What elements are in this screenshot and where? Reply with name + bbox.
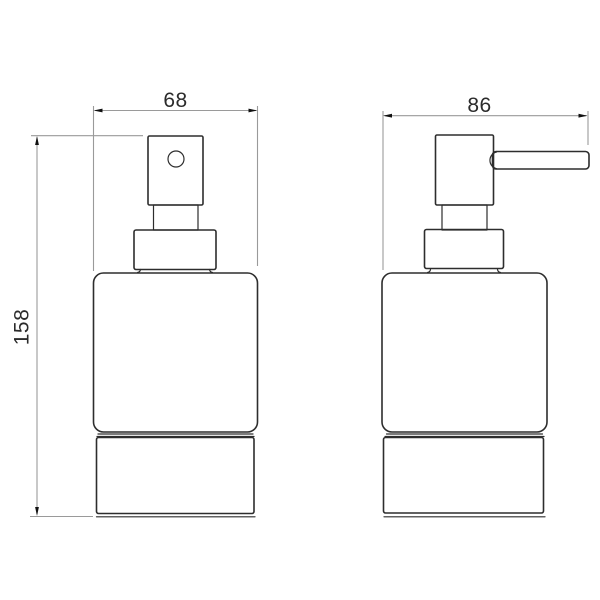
dim-158-value: 158 [11, 309, 34, 346]
dim-86-arrow-right [579, 114, 588, 118]
front-view [94, 136, 258, 517]
side-collar-foot-left [428, 270, 431, 273]
front-metal-base [97, 438, 255, 514]
side-metal-base [384, 438, 544, 514]
side-collar-foot-right [498, 270, 501, 273]
side-glass-body [382, 273, 547, 432]
side-pump-collar [425, 230, 504, 269]
side-pump-head [436, 135, 494, 205]
dim-158-arrow-bottom [35, 507, 39, 516]
dim-68-value: 68 [163, 89, 187, 112]
dimension-front-width: 68 [94, 89, 258, 271]
side-pump-neck [442, 205, 487, 230]
dim-68-arrow-right [249, 109, 258, 113]
front-pump-collar [134, 230, 216, 270]
side-pump-spout [493, 152, 590, 170]
dimension-height: 158 [11, 136, 144, 517]
front-pump-neck [154, 205, 199, 230]
front-pump-head [148, 136, 203, 205]
front-pump-head-hole [168, 151, 184, 167]
dimension-side-depth: 86 [383, 94, 588, 270]
dim-68-arrow-left [94, 109, 103, 113]
drawing-page: 68 158 86 [0, 0, 600, 600]
dim-86-arrow-left [383, 114, 392, 118]
side-view [382, 135, 589, 517]
front-glass-body [94, 273, 258, 432]
dim-158-arrow-top [35, 136, 39, 145]
drawing-canvas: 68 158 86 [0, 0, 600, 600]
dim-86-value: 86 [467, 94, 491, 117]
